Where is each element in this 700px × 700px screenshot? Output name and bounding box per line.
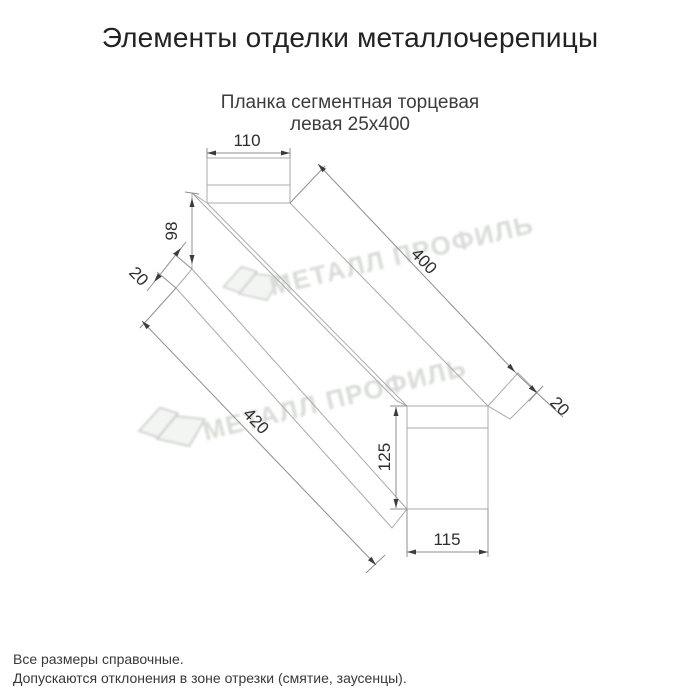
footer-note-1: Все размеры справочные. — [13, 650, 407, 669]
watermark-text: МЕТАЛЛ ПРОФИЛЬ — [267, 209, 537, 301]
watermark-logo-icon — [135, 399, 209, 456]
dim-125-label: 125 — [375, 443, 394, 471]
watermark-text: МЕТАЛЛ ПРОФИЛЬ — [200, 352, 470, 447]
watermark-layer: МЕТАЛЛ ПРОФИЛЬ МЕТАЛЛ ПРОФИЛЬ — [135, 209, 537, 456]
dim-left-flap: 20 — [125, 242, 192, 291]
dim-115-label: 115 — [433, 530, 460, 549]
footer-note-2: Допускаются отклонения в зоне отрезки (с… — [13, 669, 407, 688]
dim-top-tab-width: 110 — [207, 131, 290, 158]
dim-98-label: 98 — [162, 222, 181, 241]
dim-110-label: 110 — [233, 131, 260, 150]
technical-drawing: МЕТАЛЛ ПРОФИЛЬ МЕТАЛЛ ПРОФИЛЬ 110 — [0, 0, 700, 700]
dim-20-left-label: 20 — [125, 263, 152, 290]
dim-20-right-label: 20 — [546, 393, 573, 420]
dim-left-end-height: 98 — [162, 192, 199, 264]
profile-lines — [176, 158, 537, 528]
dim-end-height: 125 — [375, 406, 407, 509]
dim-end-width: 115 — [407, 509, 488, 557]
drawing-page: Элементы отделки металлочерепицы Планка … — [0, 0, 700, 700]
footer-notes: Все размеры справочные. Допускаются откл… — [13, 650, 407, 688]
